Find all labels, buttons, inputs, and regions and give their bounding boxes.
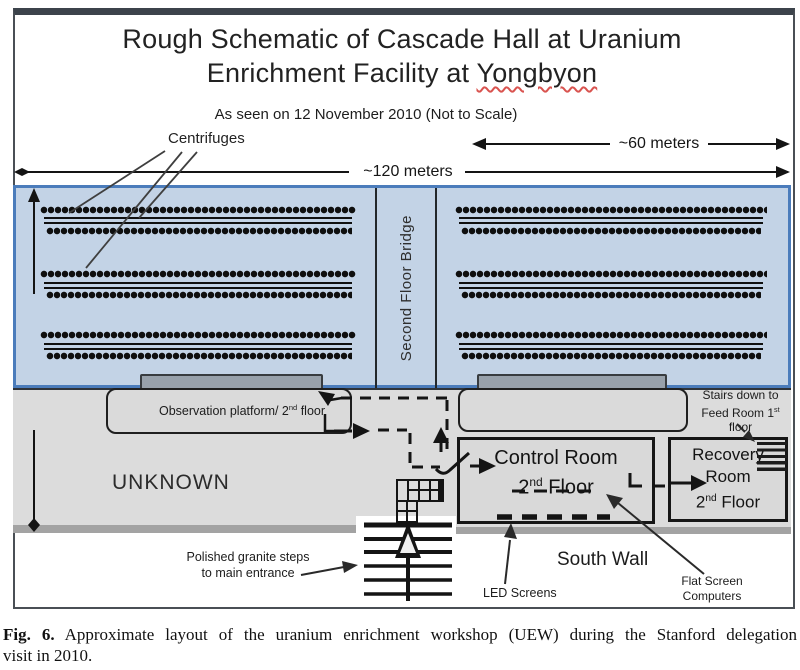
figure-subtitle: As seen on 12 November 2010 (Not to Scal… — [13, 106, 719, 123]
control-room-box: Control Room 2nd Floor — [457, 437, 655, 524]
observation-platform-box: Observation platform/ 2nd floor — [106, 388, 352, 434]
centrifuge-row — [455, 270, 767, 278]
observation-platform-label: Observation platform/ 2nd floor — [159, 403, 325, 418]
centrifuges-label: Centrifuges — [168, 130, 245, 147]
centrifuge-pipe-run — [459, 217, 763, 224]
observation-platform-box-right — [458, 388, 688, 432]
south-wall-band-left — [13, 525, 358, 533]
centrifuge-row — [46, 227, 352, 235]
title-line2-underlined-word: Yongbyon — [476, 58, 597, 88]
granite-steps-line2: to main entrance — [178, 565, 318, 581]
centrifuge-row — [461, 352, 761, 360]
stairs-down-line2: Feed Room 1st — [692, 403, 789, 421]
centrifuge-row — [455, 331, 767, 339]
title-line2-prefix: Enrichment Facility at — [207, 58, 477, 88]
south-wall-label: South Wall — [557, 549, 648, 571]
flat-screen-line1: Flat Screen — [672, 574, 752, 589]
caption-line1: Fig. 6. Approximate layout of the uraniu… — [3, 624, 797, 645]
led-screens-label: LED Screens — [483, 586, 557, 600]
bridge-label: Second Floor Bridge — [398, 215, 415, 361]
centrifuge-pipe-run — [459, 282, 763, 289]
dim-120m-label: ~120 meters — [350, 163, 466, 181]
centrifuge-row — [40, 206, 356, 214]
stairs-down-line1: Stairs down to — [692, 388, 789, 403]
stairs-down-line2-pre: Feed Room 1 — [701, 406, 774, 420]
control-room-label-line2: 2nd Floor — [460, 470, 652, 500]
centrifuge-row — [40, 331, 356, 339]
stairs-down-note: Stairs down to Feed Room 1st floor — [692, 388, 789, 435]
control-floor-word: Floor — [543, 477, 594, 499]
observation-label-post: floor — [297, 405, 325, 419]
entrance-gap — [356, 516, 456, 598]
centrifuge-pipe-run — [44, 217, 352, 224]
control-room-label-line1: Control Room — [460, 446, 652, 470]
granite-steps-line1: Polished granite steps — [178, 549, 318, 565]
recovery-label-line3: 2nd Floor — [671, 488, 785, 514]
centrifuge-row — [455, 206, 767, 214]
south-wall-band-right — [447, 527, 791, 534]
control-floor-sup: nd — [529, 475, 542, 489]
centrifuge-row — [40, 270, 356, 278]
caption-line2: visit in 2010. — [3, 645, 797, 666]
centrifuge-row — [461, 291, 761, 299]
granite-steps-note: Polished granite steps to main entrance — [178, 549, 318, 581]
stairs-down-line3: floor — [692, 420, 789, 435]
figure-title-line2: Enrichment Facility at Yongbyon — [13, 58, 791, 89]
figure-caption: Fig. 6. Approximate layout of the uraniu… — [3, 624, 797, 666]
centrifuge-row — [461, 227, 761, 235]
recovery-floor-word: Floor — [717, 493, 760, 512]
observation-label-pre: Observation platform/ 2 — [159, 405, 289, 419]
control-floor-num: 2 — [518, 477, 529, 499]
flat-screen-line2: Computers — [672, 589, 752, 604]
centrifuge-pipe-run — [44, 343, 352, 350]
flat-screen-note: Flat Screen Computers — [672, 574, 752, 604]
centrifuge-pipe-run — [459, 343, 763, 350]
figure-title-line1: Rough Schematic of Cascade Hall at Urani… — [13, 24, 791, 55]
caption-fig-label: Fig. 6. — [3, 625, 55, 644]
observation-label-sup: nd — [289, 403, 297, 412]
dim-60m-label: ~60 meters — [612, 135, 706, 153]
recovery-floor-sup: nd — [705, 493, 716, 504]
second-floor-bridge: Second Floor Bridge — [375, 188, 437, 388]
centrifuge-pipe-run — [44, 282, 352, 289]
centrifuge-row — [46, 352, 352, 360]
figure-page: Rough Schematic of Cascade Hall at Urani… — [0, 0, 800, 670]
recovery-floor-num: 2 — [696, 493, 705, 512]
stairs-ladder-icon — [757, 442, 787, 471]
centrifuge-row — [46, 291, 352, 299]
caption-text: Approximate layout of the uranium enrich… — [65, 625, 797, 644]
unknown-area-label: UNKNOWN — [112, 471, 230, 495]
stairs-down-line2-sup: st — [774, 405, 780, 414]
